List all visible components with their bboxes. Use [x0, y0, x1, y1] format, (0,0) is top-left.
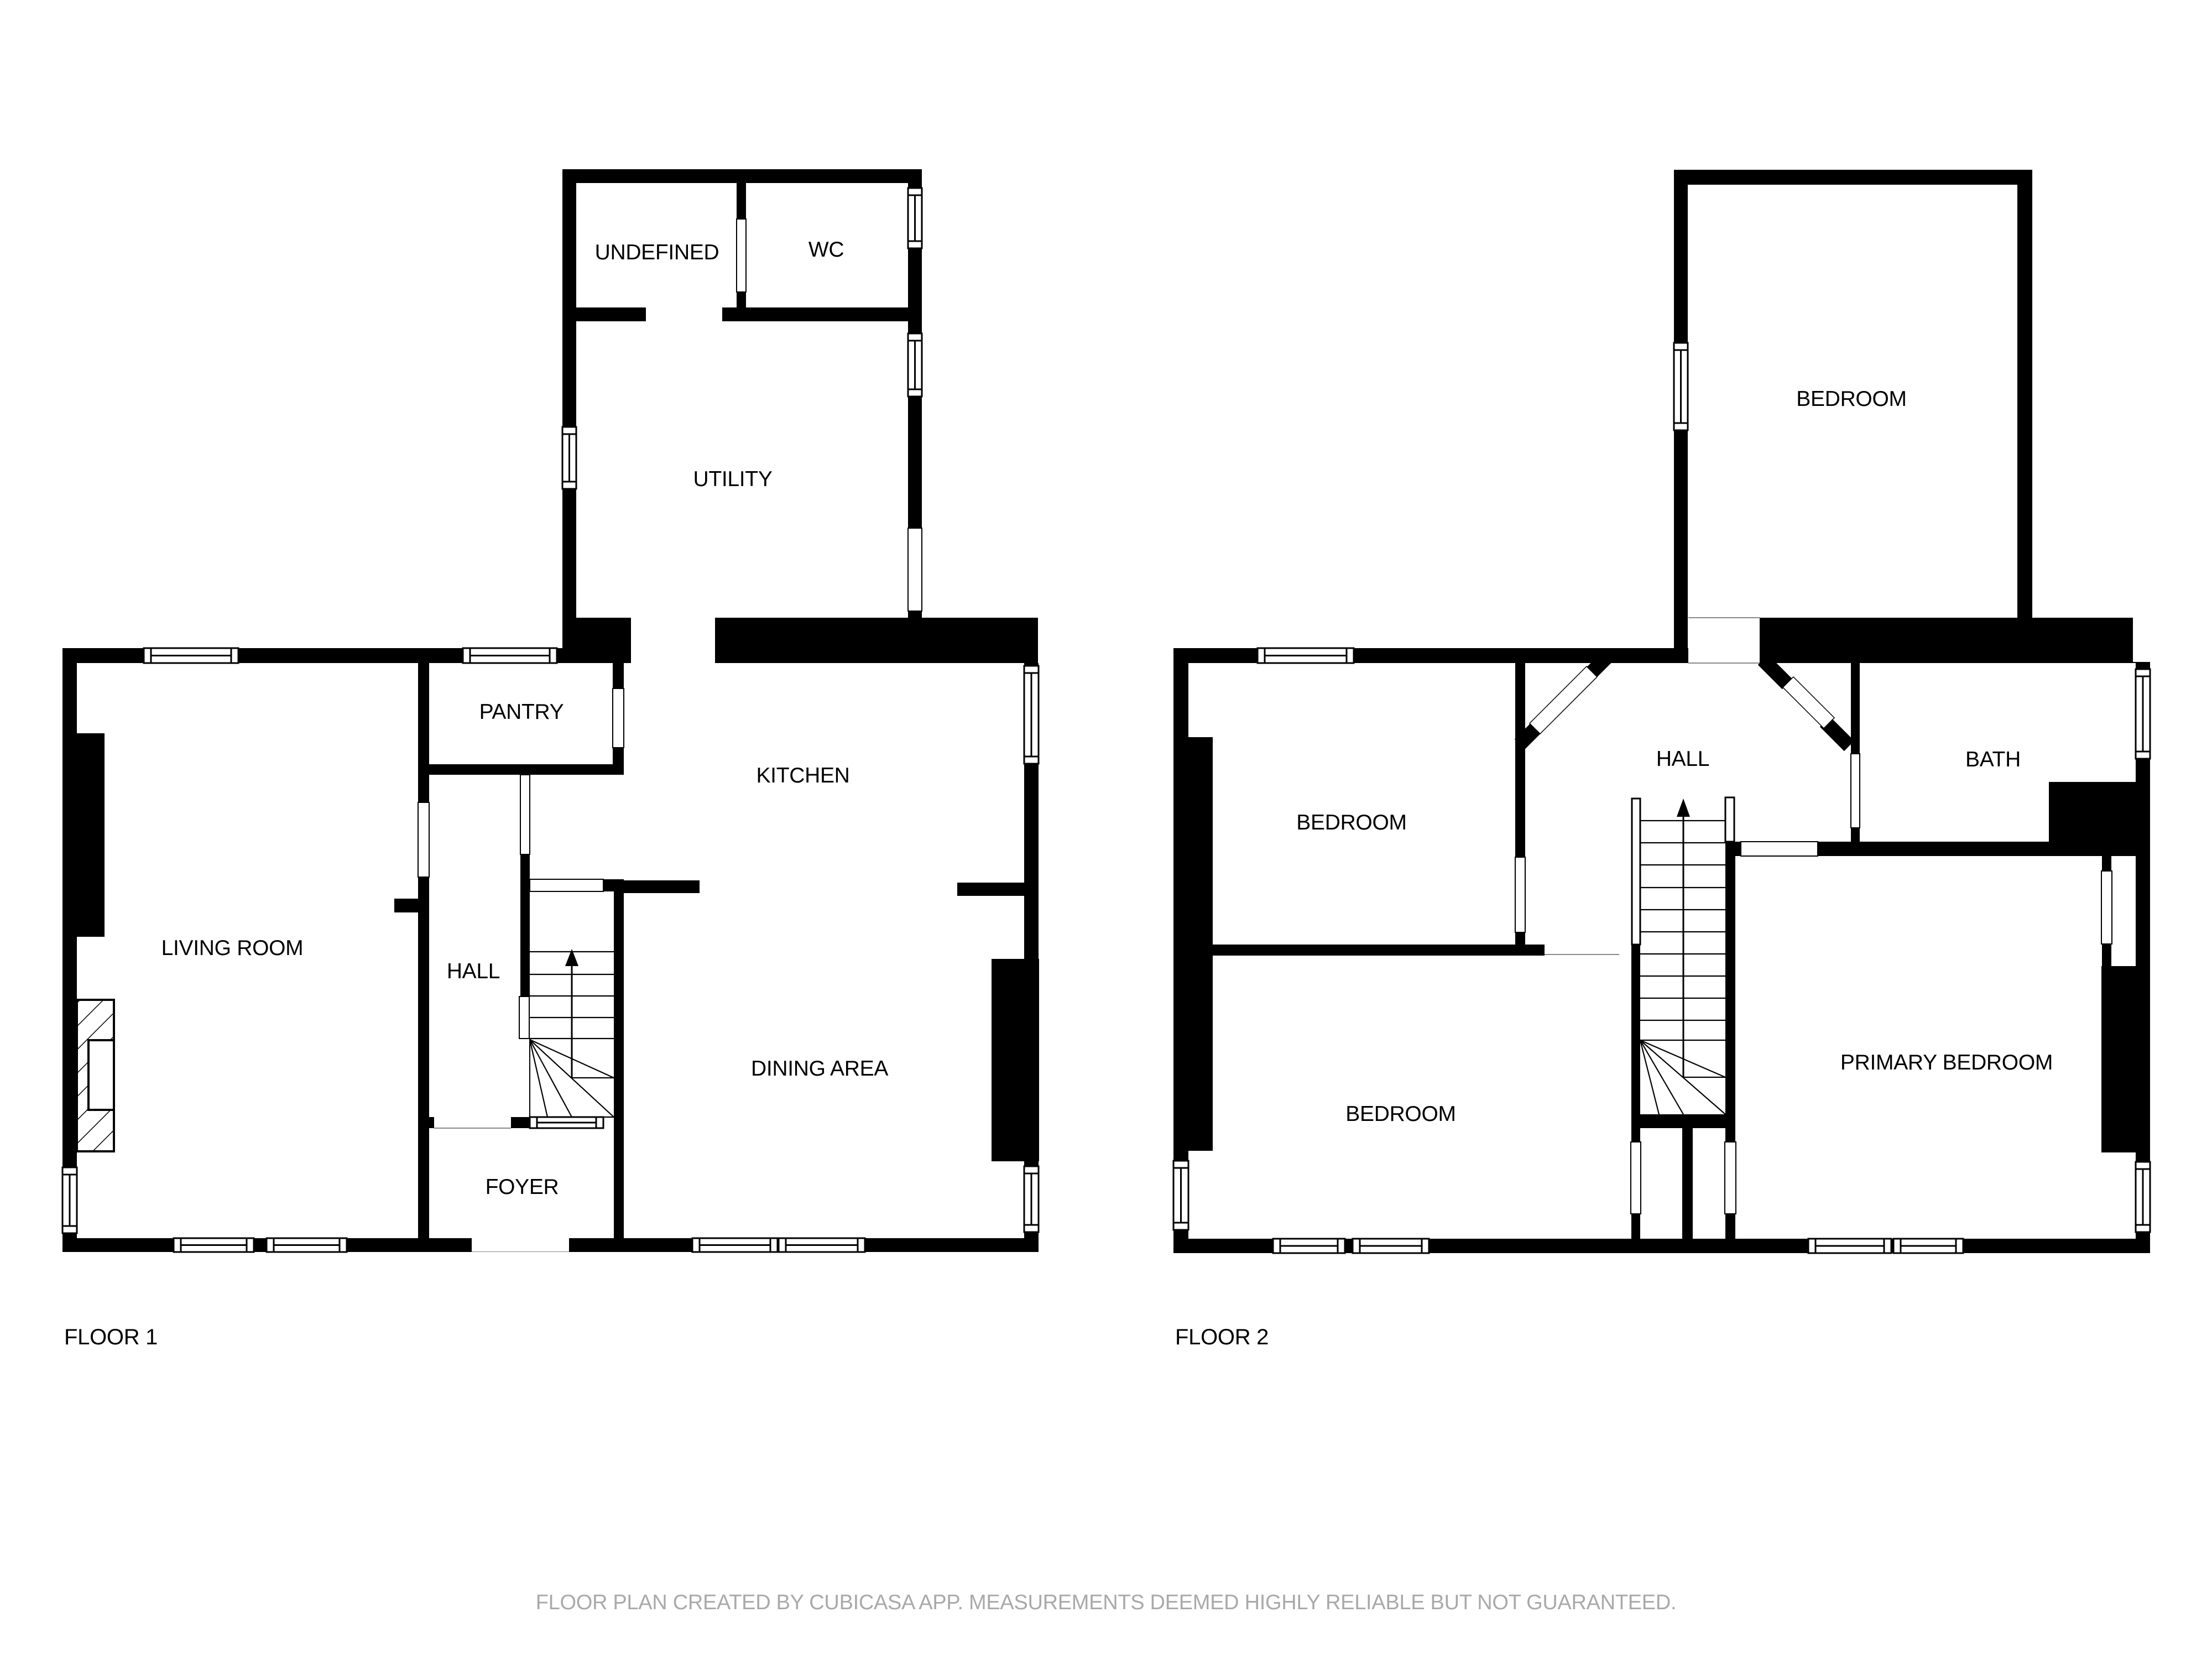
svg-text:BEDROOM: BEDROOM	[1345, 1102, 1455, 1126]
svg-text:FOYER: FOYER	[486, 1175, 559, 1199]
svg-text:KITCHEN: KITCHEN	[756, 764, 849, 787]
svg-text:UTILITY: UTILITY	[693, 467, 772, 491]
svg-text:FLOOR 1: FLOOR 1	[64, 1325, 158, 1349]
svg-text:FLOOR PLAN CREATED BY CUBICASA: FLOOR PLAN CREATED BY CUBICASA APP. MEAS…	[536, 1591, 1677, 1614]
svg-text:FLOOR 2: FLOOR 2	[1175, 1325, 1269, 1349]
svg-text:DINING AREA: DINING AREA	[751, 1057, 888, 1081]
svg-text:HALL: HALL	[1656, 747, 1709, 771]
svg-text:WC: WC	[808, 238, 844, 262]
svg-text:LIVING ROOM: LIVING ROOM	[161, 936, 304, 960]
svg-text:UNDEFINED: UNDEFINED	[595, 241, 719, 264]
svg-text:BEDROOM: BEDROOM	[1796, 387, 1906, 411]
svg-text:PANTRY: PANTRY	[479, 700, 564, 724]
svg-text:HALL: HALL	[447, 959, 500, 983]
svg-text:BEDROOM: BEDROOM	[1296, 811, 1406, 834]
svg-text:PRIMARY BEDROOM: PRIMARY BEDROOM	[1840, 1051, 2053, 1074]
svg-text:BATH: BATH	[1965, 748, 2021, 771]
